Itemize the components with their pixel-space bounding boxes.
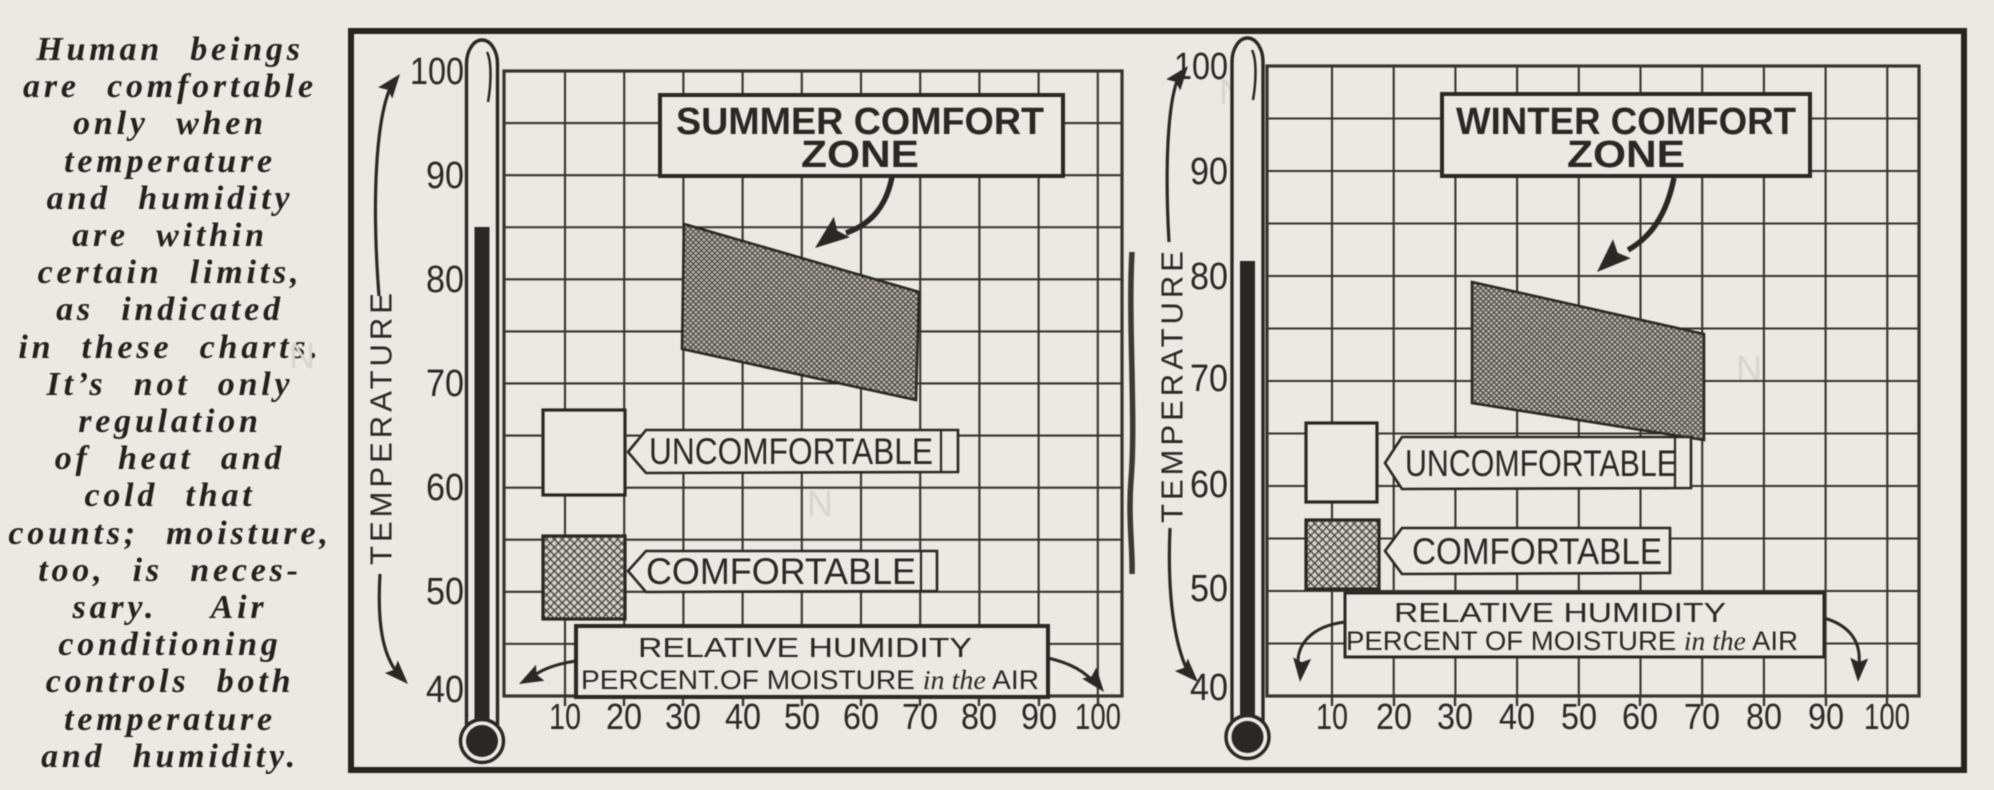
svg-text:ZONE: ZONE	[1567, 134, 1685, 176]
svg-text:90: 90	[1190, 151, 1228, 193]
svg-text:COMFORTABLE: COMFORTABLE	[646, 551, 916, 592]
svg-text:50: 50	[426, 571, 464, 613]
svg-text:100: 100	[410, 51, 464, 93]
svg-text:COMFORTABLE: COMFORTABLE	[1412, 531, 1662, 572]
svg-text:ZONE: ZONE	[801, 134, 919, 176]
svg-text:N: N	[289, 335, 315, 376]
svg-text:UNCOMFORTABLE: UNCOMFORTABLE	[649, 431, 933, 472]
svg-text:70: 70	[1190, 358, 1228, 400]
svg-text:TEMPERATURE: TEMPERATURE	[364, 289, 399, 565]
svg-text:N: N	[807, 483, 833, 524]
svg-text:UNCOMFORTABLE: UNCOMFORTABLE	[1405, 443, 1677, 484]
svg-text:PERCENT.OF MOISTURE in the AIR: PERCENT.OF MOISTURE in the AIR	[581, 665, 1039, 695]
svg-text:RELATIVE HUMIDITY: RELATIVE HUMIDITY	[638, 632, 972, 663]
svg-text:70: 70	[426, 363, 464, 405]
svg-text:RELATIVE HUMIDITY: RELATIVE HUMIDITY	[1394, 597, 1726, 628]
svg-text:40: 40	[426, 669, 464, 711]
svg-text:50: 50	[1190, 568, 1228, 610]
svg-text:N: N	[1736, 348, 1762, 389]
svg-text:TEMPERATURE: TEMPERATURE	[1155, 247, 1190, 523]
svg-text:80: 80	[426, 259, 464, 301]
svg-text:80: 80	[1190, 256, 1228, 298]
svg-text:60: 60	[1190, 464, 1228, 506]
svg-text:90: 90	[426, 155, 464, 197]
svg-text:60: 60	[426, 467, 464, 509]
svg-text:PERCENT OF MOISTURE in the AIR: PERCENT OF MOISTURE in the AIR	[1346, 626, 1798, 656]
svg-text:40: 40	[1190, 667, 1228, 709]
